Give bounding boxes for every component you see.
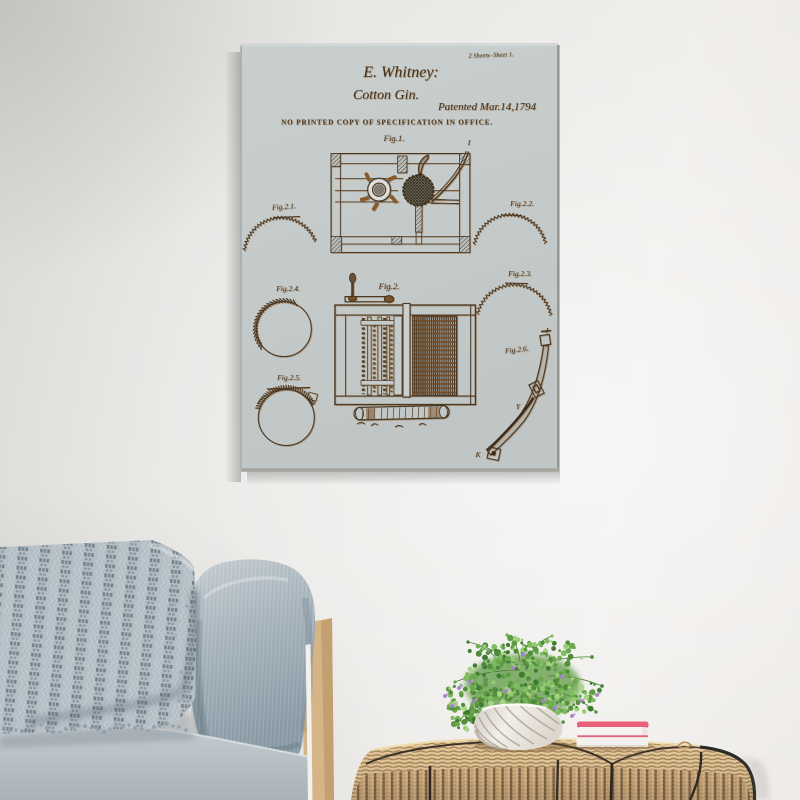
svg-text:Fig.2.4.: Fig.2.4. <box>275 284 300 293</box>
svg-text:NO PRINTED COPY OF SPECIFICATI: NO PRINTED COPY OF SPECIFICATION IN OFFI… <box>281 119 493 127</box>
svg-text:Cotton Gin.: Cotton Gin. <box>353 88 419 103</box>
svg-text:E. Whitney:: E. Whitney: <box>362 64 439 81</box>
svg-text:Fig.2.: Fig.2. <box>377 281 399 291</box>
svg-text:I: I <box>545 326 549 335</box>
svg-text:Patented Mar.14,1794: Patented Mar.14,1794 <box>437 101 537 113</box>
svg-text:Fig.1.: Fig.1. <box>382 133 404 143</box>
svg-text:Fig.2.2.: Fig.2.2. <box>509 199 534 208</box>
svg-text:Fig.2.1.: Fig.2.1. <box>271 201 297 212</box>
svg-text:I: I <box>467 138 471 147</box>
svg-text:Fig.2.3.: Fig.2.3. <box>507 269 532 278</box>
svg-text:K: K <box>474 450 481 459</box>
svg-text:Fig.2.5.: Fig.2.5. <box>276 373 301 382</box>
